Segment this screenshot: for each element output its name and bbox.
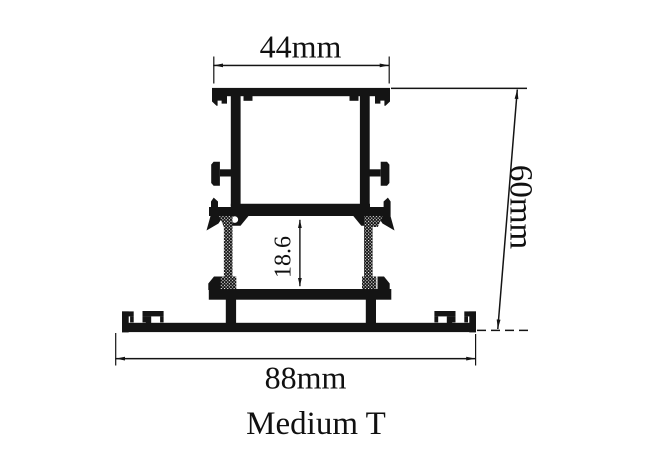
svg-text:88mm: 88mm (265, 360, 347, 396)
svg-text:44mm: 44mm (260, 29, 342, 65)
svg-text:Medium T: Medium T (246, 406, 386, 442)
svg-text:18.6: 18.6 (271, 236, 297, 278)
